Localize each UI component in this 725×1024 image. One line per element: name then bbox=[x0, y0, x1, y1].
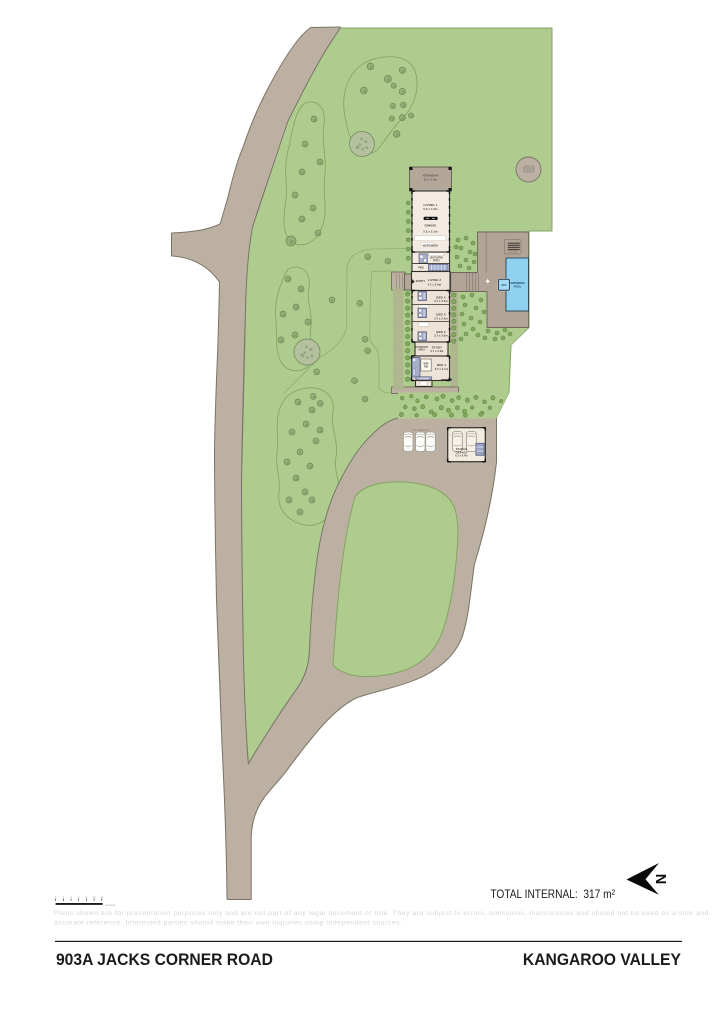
svg-text:DINING: DINING bbox=[425, 223, 437, 227]
svg-text:LIVING 2: LIVING 2 bbox=[428, 278, 441, 282]
svg-text:3.7 x 3.0m: 3.7 x 3.0m bbox=[434, 300, 448, 303]
svg-text:3.7 x 3.0m: 3.7 x 3.0m bbox=[434, 335, 448, 338]
svg-text:GARAGE: GARAGE bbox=[456, 451, 468, 454]
svg-text:VERANDAH: VERANDAH bbox=[423, 174, 439, 178]
svg-text:BED 2: BED 2 bbox=[436, 330, 446, 334]
svg-text:STUDY: STUDY bbox=[432, 346, 442, 350]
svg-text:5.2 x 4.3m: 5.2 x 4.3m bbox=[423, 207, 438, 211]
svg-text:KANGAROO VALLEY: KANGAROO VALLEY bbox=[523, 950, 681, 968]
svg-text:2.7 x 2.6m: 2.7 x 2.6m bbox=[431, 350, 444, 353]
svg-text:CAR SPACES: CAR SPACES bbox=[412, 429, 429, 432]
svg-text:PWD: PWD bbox=[418, 268, 424, 270]
svg-text:BED 4: BED 4 bbox=[436, 295, 446, 299]
svg-text:PTRY: PTRY bbox=[433, 259, 440, 262]
svg-text:903A JACKS CORNER ROAD: 903A JACKS CORNER ROAD bbox=[56, 950, 273, 968]
svg-text:N: N bbox=[652, 874, 668, 884]
svg-text:LAUNDRY: LAUNDRY bbox=[419, 377, 430, 380]
svg-text:SPA: SPA bbox=[501, 284, 506, 287]
svg-text:Plans shown are for presentati: Plans shown are for presentation purpose… bbox=[54, 910, 709, 917]
svg-text:3.7 x 4.1m: 3.7 x 4.1m bbox=[435, 368, 449, 371]
svg-text:POOL: POOL bbox=[514, 286, 522, 289]
svg-text:4.1 x 3.9m: 4.1 x 3.9m bbox=[428, 283, 442, 286]
svg-text:3.7 x 3.4m: 3.7 x 3.4m bbox=[434, 317, 448, 320]
svg-text:LIVING 1: LIVING 1 bbox=[423, 203, 437, 207]
svg-text:8.0 x 2.4m: 8.0 x 2.4m bbox=[424, 179, 437, 182]
svg-text:accurate reference. Interested: accurate reference. Interested parties s… bbox=[54, 920, 402, 927]
svg-text:metres: metres bbox=[106, 903, 117, 907]
svg-text:KITCHEN: KITCHEN bbox=[423, 244, 437, 248]
svg-text:TOTAL INTERNAL: 317 m²: TOTAL INTERNAL: 317 m² bbox=[490, 888, 615, 901]
svg-text:BED 3: BED 3 bbox=[436, 312, 446, 316]
svg-text:OUTDOOR: OUTDOOR bbox=[415, 347, 428, 349]
svg-text:ENTRY: ENTRY bbox=[416, 279, 426, 283]
svg-text:BED 1: BED 1 bbox=[437, 363, 447, 367]
svg-text:6.2 x 6.4m: 6.2 x 6.4m bbox=[455, 455, 467, 458]
svg-text:AREA: AREA bbox=[418, 349, 425, 352]
svg-text:5.2 x 3.1m: 5.2 x 3.1m bbox=[423, 230, 438, 234]
svg-text:RM: RM bbox=[424, 365, 428, 368]
